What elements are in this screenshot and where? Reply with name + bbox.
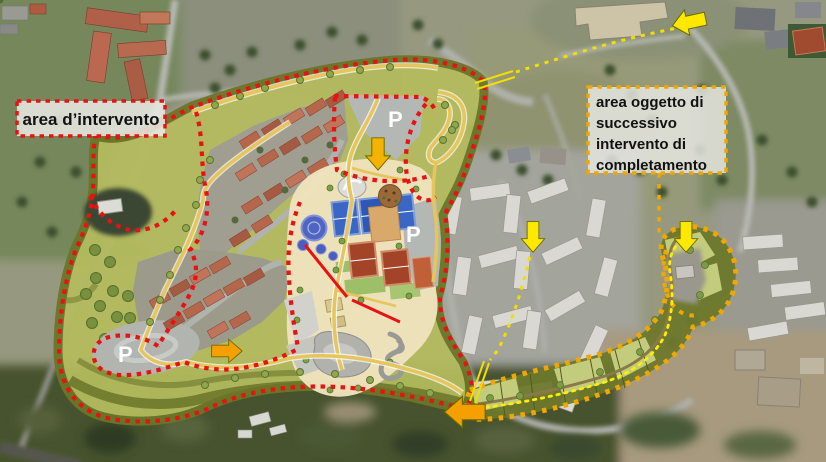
label-completion-line1: area oggetto di xyxy=(596,94,704,111)
bocce-court xyxy=(368,205,400,243)
label-completion-line4: completamento xyxy=(596,157,707,174)
map-canvas: P P P area d’intervento area oggetto di … xyxy=(0,0,826,462)
parking-letter-east: P xyxy=(406,222,421,247)
pocket-shed xyxy=(97,198,123,214)
parking-letter-west: P xyxy=(118,342,133,367)
label-completion-box: area oggetto di successivo intervento di… xyxy=(588,87,726,174)
masterplan-map: P P P area d’intervento area oggetto di … xyxy=(0,0,826,462)
label-intervention-text: area d’intervento xyxy=(23,110,160,129)
label-completion-line2: successivo xyxy=(596,115,677,132)
playground xyxy=(379,185,402,208)
parking-letter-north: P xyxy=(388,107,403,132)
label-completion-line3: intervento di xyxy=(596,136,686,153)
label-intervention-box: area d’intervento xyxy=(17,101,165,136)
